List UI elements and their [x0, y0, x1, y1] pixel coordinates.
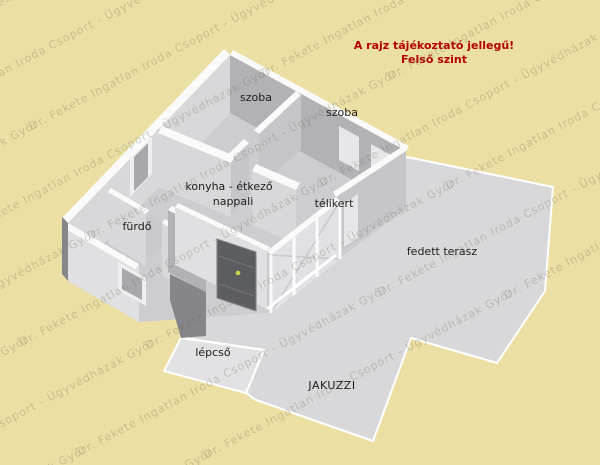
room-label-lepcso: lépcső: [195, 346, 231, 359]
floorplan-canvas: szoba szoba konyha - étkező nappali téli…: [0, 0, 600, 465]
floorplan-image: szoba szoba konyha - étkező nappali téli…: [0, 0, 600, 465]
room-label-telikert: télikert: [315, 197, 354, 210]
room-label-szoba-1: szoba: [240, 91, 272, 104]
room-label-konyha-line2: nappali: [213, 195, 254, 208]
door-handle: [236, 271, 241, 276]
